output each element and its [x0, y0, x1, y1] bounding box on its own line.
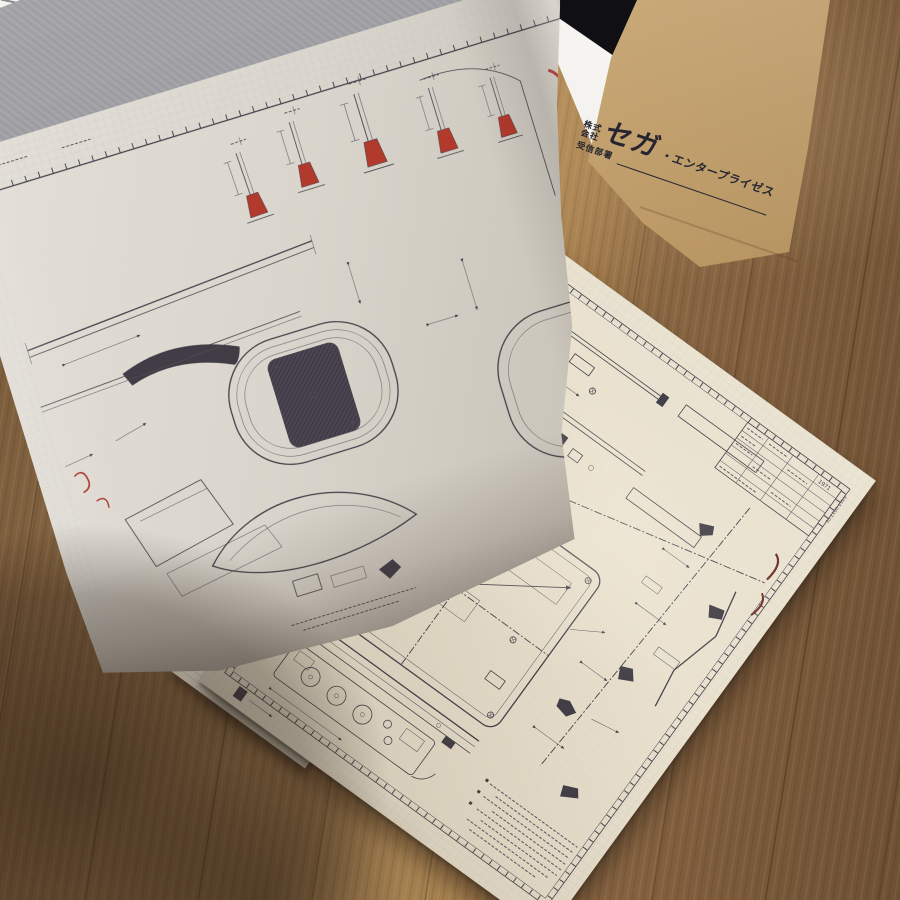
photograph-scene: 株式 会社 セガ ・エンタープライゼス 受信部署 — [0, 0, 900, 900]
trapezoid-panels — [121, 463, 288, 606]
monitor-bezel-oval — [214, 307, 412, 479]
bumper-moulding-profile — [120, 330, 244, 397]
